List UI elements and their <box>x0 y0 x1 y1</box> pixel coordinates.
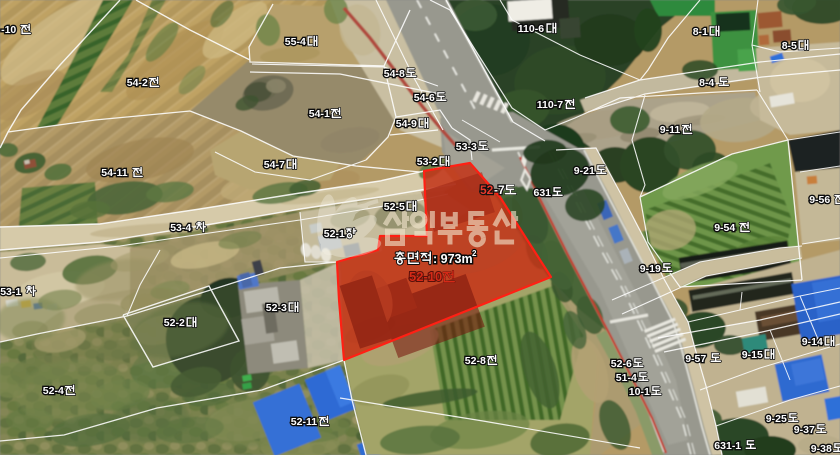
svg-text:10-1: 10-1 <box>629 386 650 398</box>
svg-text:8-1: 8-1 <box>693 26 708 38</box>
svg-text:631-1: 631-1 <box>714 440 741 452</box>
svg-text:9-37: 9-37 <box>794 424 815 436</box>
svg-text:52-8: 52-8 <box>465 355 486 367</box>
svg-text:55-4: 55-4 <box>285 36 306 48</box>
svg-text:52-10: 52-10 <box>409 269 442 284</box>
svg-text:8-5: 8-5 <box>782 40 797 52</box>
svg-text:54-7: 54-7 <box>264 159 285 171</box>
svg-text:9-15: 9-15 <box>742 349 763 361</box>
svg-text:53-4: 53-4 <box>170 222 191 234</box>
svg-text:52-4: 52-4 <box>43 385 64 397</box>
svg-text:9-54: 9-54 <box>714 222 735 234</box>
svg-text:-10: -10 <box>1 24 16 36</box>
svg-text:52-6: 52-6 <box>611 358 632 370</box>
svg-text:54-9: 54-9 <box>396 118 417 130</box>
svg-text:54-8: 54-8 <box>384 68 405 80</box>
svg-text:52: 52 <box>480 183 494 197</box>
svg-text:54-1: 54-1 <box>309 108 330 120</box>
svg-text:52-11: 52-11 <box>291 416 317 428</box>
svg-text:52-1: 52-1 <box>324 228 345 240</box>
svg-text:54-2: 54-2 <box>127 77 148 89</box>
svg-text:2: 2 <box>472 249 477 258</box>
svg-text:-7: -7 <box>494 183 505 197</box>
svg-text:9-19: 9-19 <box>640 263 661 275</box>
svg-text:52-5: 52-5 <box>384 201 405 213</box>
svg-text:110-6: 110-6 <box>518 23 544 35</box>
svg-text:54-6: 54-6 <box>414 92 435 104</box>
svg-text:110-7: 110-7 <box>537 99 563 111</box>
svg-text:9-11: 9-11 <box>660 124 681 136</box>
svg-text:9-56: 9-56 <box>809 194 830 206</box>
svg-text:9-14: 9-14 <box>802 336 823 348</box>
svg-text:9-38: 9-38 <box>811 443 832 455</box>
svg-text:52-3: 52-3 <box>266 302 287 314</box>
svg-text:9-25: 9-25 <box>766 413 787 425</box>
svg-text:51-4: 51-4 <box>616 372 637 384</box>
svg-text:53-3: 53-3 <box>456 141 477 153</box>
svg-text:53-1: 53-1 <box>0 286 21 298</box>
svg-text:9-21: 9-21 <box>574 165 595 177</box>
svg-text:53-2: 53-2 <box>417 156 438 168</box>
svg-text:52-2: 52-2 <box>164 317 185 329</box>
svg-text:9-57: 9-57 <box>685 353 706 365</box>
svg-text:54-11: 54-11 <box>101 167 127 179</box>
svg-text:8-4: 8-4 <box>699 77 714 89</box>
svg-text:631: 631 <box>534 187 552 199</box>
svg-text:: 973m: : 973m <box>433 252 473 266</box>
